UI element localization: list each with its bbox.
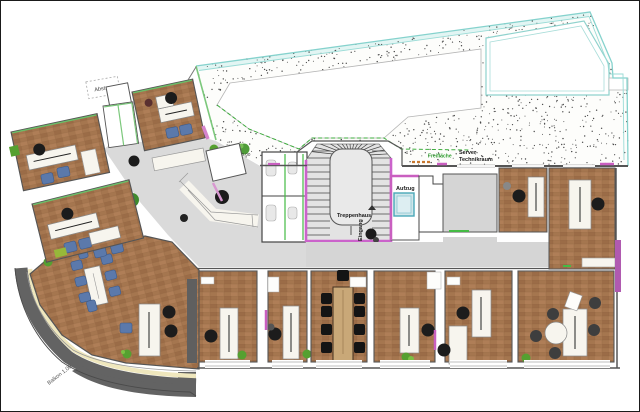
svg-text:Treppenhaus: Treppenhaus [337,213,371,219]
svg-text:Freifläche: Freifläche [428,154,452,160]
svg-text:Server-: Server- [459,150,478,156]
svg-text:Eingang: Eingang [358,219,364,241]
svg-text:Aufzug: Aufzug [396,186,415,192]
svg-text:Technikraum: Technikraum [459,157,493,163]
